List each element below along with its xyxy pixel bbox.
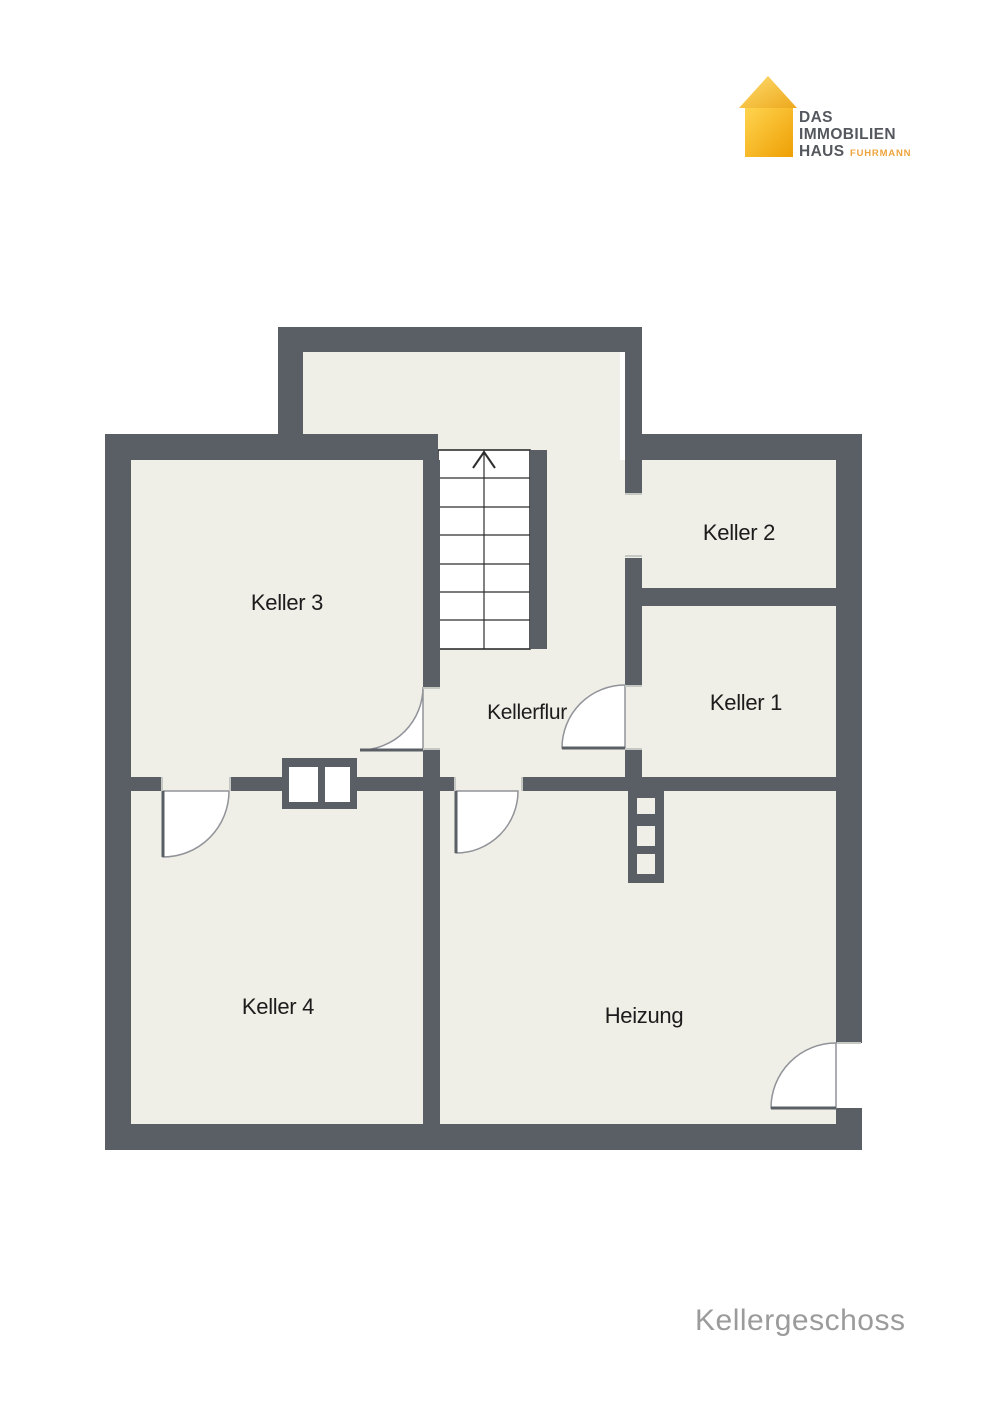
logo-text-das: DAS <box>799 109 833 126</box>
logo-text-haus: HAUS <box>799 143 845 160</box>
room-label-keller4: Keller 4 <box>242 994 314 1019</box>
wall-window-element <box>282 758 357 809</box>
room-label-keller1: Keller 1 <box>710 690 782 715</box>
wall-keller3-right-stub <box>423 750 440 778</box>
logo-text-immobilien: IMMOBILIEN <box>799 126 896 143</box>
company-logo: DAS IMMOBILIEN HAUS FUHRMANN <box>739 76 911 160</box>
exterior-door-opening <box>836 1043 862 1108</box>
house-icon <box>739 76 797 157</box>
room-label-heizung: Heizung <box>605 1003 684 1028</box>
wall-exterior-bottom <box>105 1124 862 1150</box>
wall-stairs-right <box>530 450 547 649</box>
wall-exterior-right-upper <box>836 434 862 1043</box>
wall-top-left <box>105 434 438 460</box>
wall-top-right <box>642 434 862 460</box>
room-label-kellerflur: Kellerflur <box>487 701 567 724</box>
wall-stairwell-right <box>625 352 642 493</box>
staircase <box>438 450 530 649</box>
wall-kellerflur-east-mid <box>625 558 642 685</box>
room-label-keller3: Keller 3 <box>251 590 323 615</box>
wall-exterior-right-lower <box>836 1108 862 1124</box>
plan-title: Kellergeschoss <box>695 1304 905 1337</box>
page: DAS IMMOBILIEN HAUS FUHRMANN <box>0 0 1000 1413</box>
room-label-keller2: Keller 2 <box>703 520 775 545</box>
wall-kellerflur-east-low <box>625 748 642 778</box>
wall-middle-c <box>357 777 455 791</box>
wall-keller4-heizung <box>423 791 440 1124</box>
wall-middle-b <box>230 777 282 791</box>
wall-middle-d <box>522 777 836 791</box>
wall-stairwell-top <box>278 327 642 352</box>
wall-middle-a <box>131 777 162 791</box>
logo-text-fuhrmann: FUHRMANN <box>850 148 911 159</box>
wall-exterior-left <box>105 434 131 1150</box>
wall-keller3-right <box>423 460 440 687</box>
wall-keller2-keller1 <box>642 588 836 606</box>
floor-plan-canvas: DAS IMMOBILIEN HAUS FUHRMANN <box>0 0 1000 1413</box>
chimney-shaft <box>628 791 664 883</box>
